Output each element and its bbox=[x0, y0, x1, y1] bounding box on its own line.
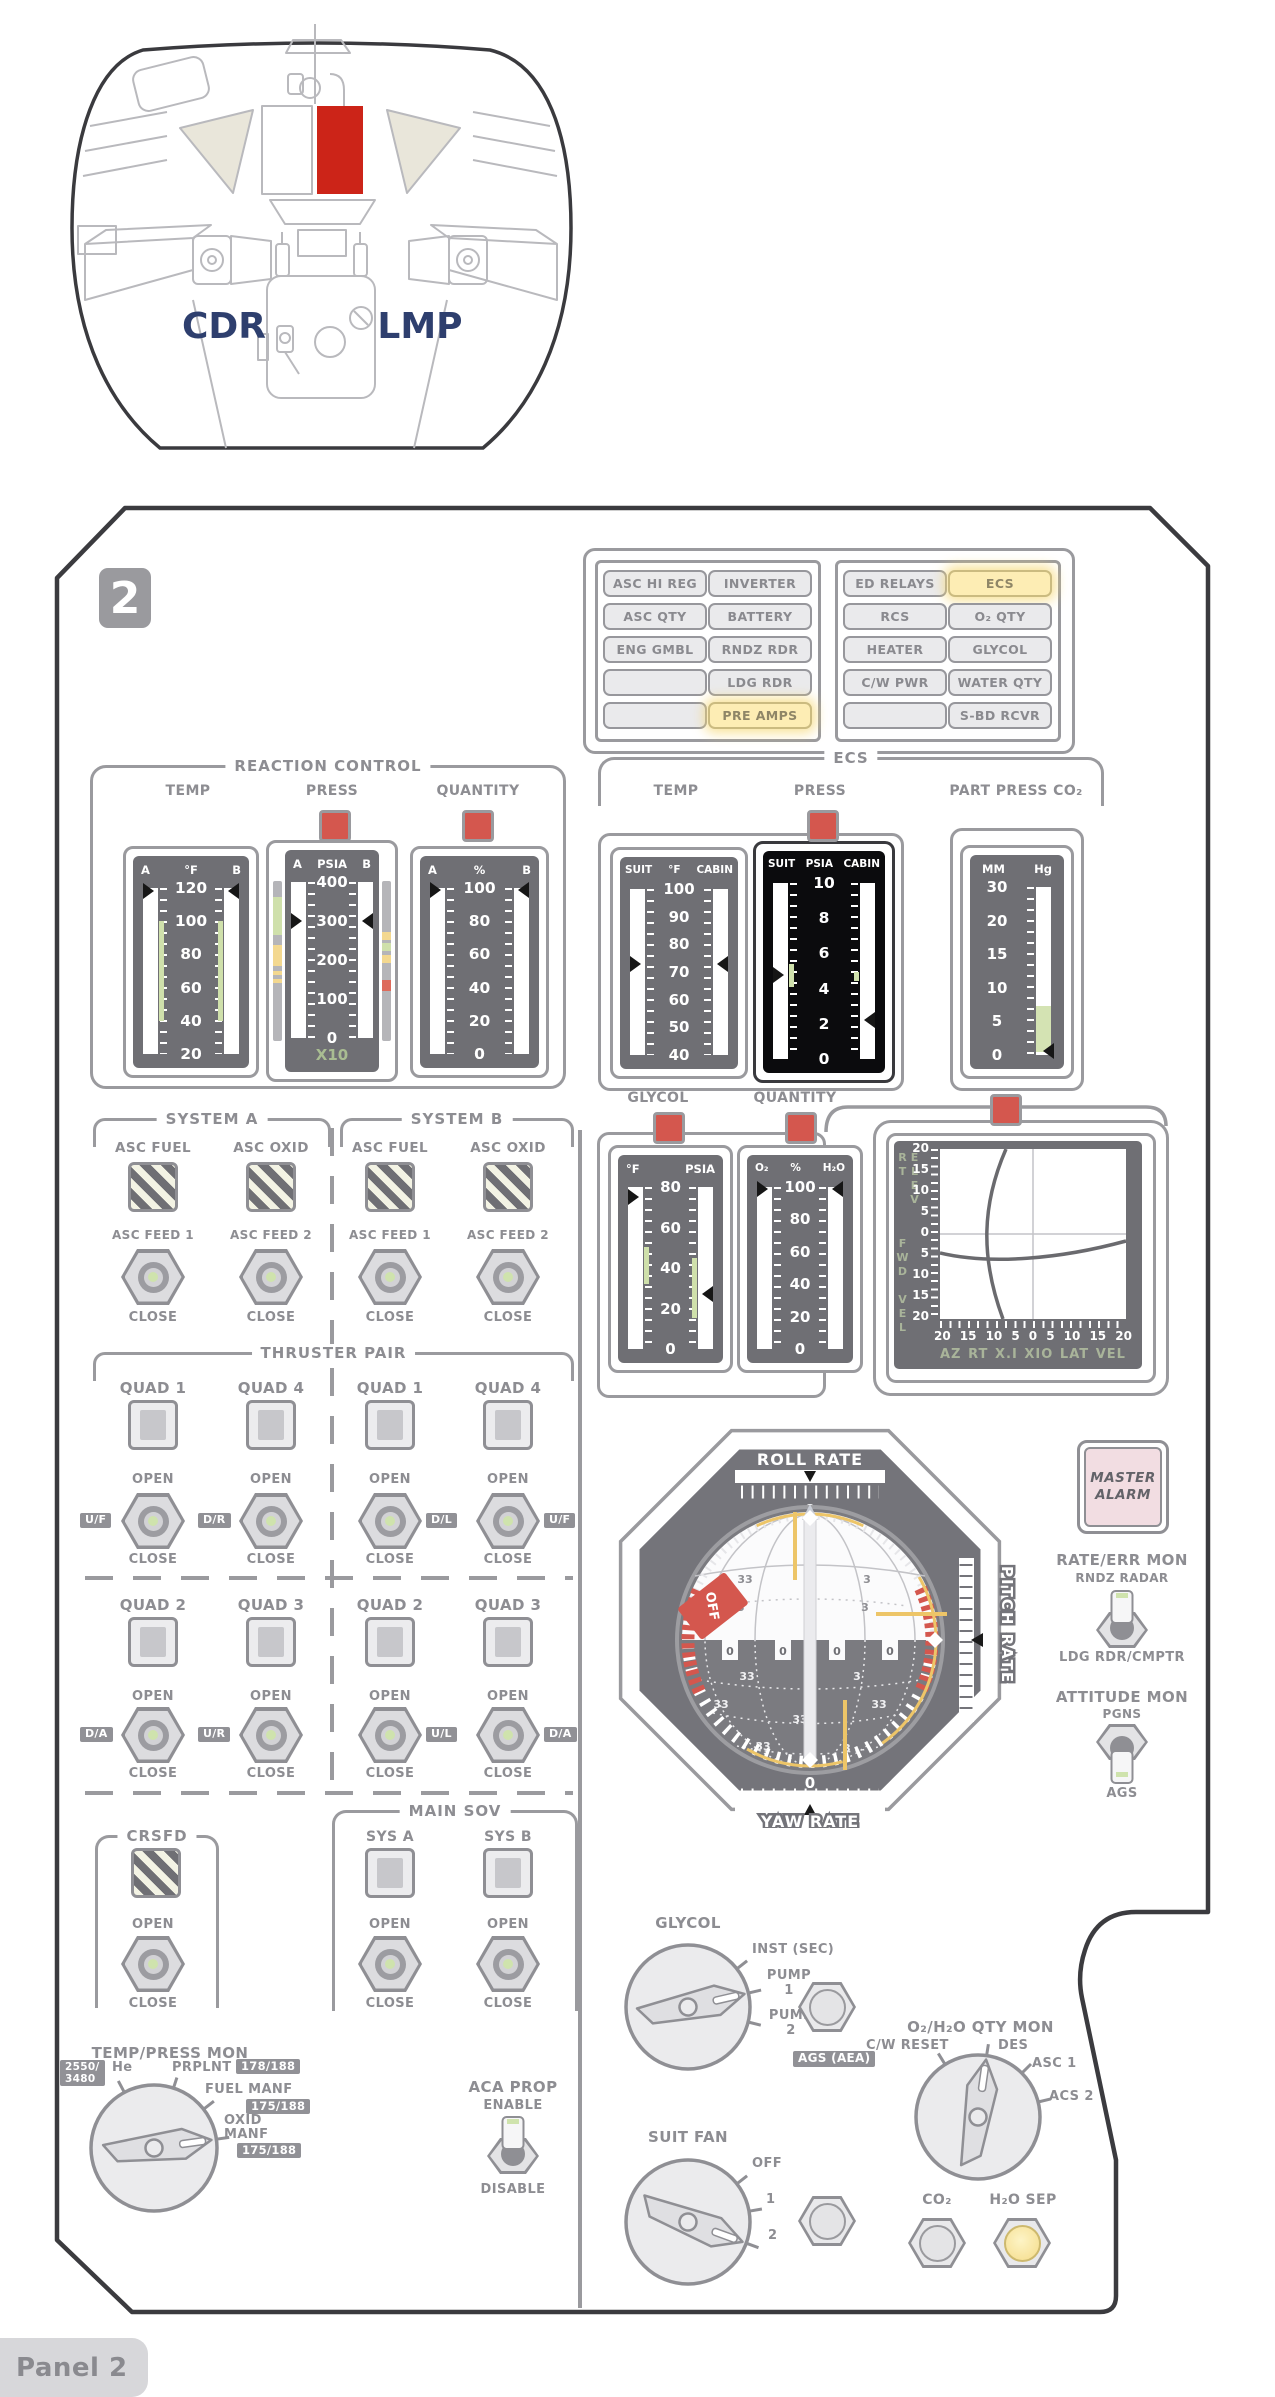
crsfd-talkback bbox=[131, 1848, 181, 1898]
quad-flag bbox=[128, 1617, 178, 1667]
quad-flag bbox=[483, 1400, 533, 1450]
tpmon-he-press-badge: 2550/3480 bbox=[60, 2060, 105, 2086]
h2o-sep-button-label: H₂O SEP bbox=[984, 2192, 1062, 2208]
master-alarm-button[interactable]: MASTERALARM bbox=[1077, 1440, 1169, 1534]
pointer-temp bbox=[628, 1189, 639, 1205]
asc-feed1-label-b: ASC FEED 1 bbox=[345, 1228, 435, 1242]
open-label: OPEN bbox=[350, 1689, 430, 1704]
thruster-pair-title: THRUSTER PAIR bbox=[252, 1344, 416, 1362]
quad-row-divider bbox=[85, 1576, 573, 1580]
svg-text:0: 0 bbox=[886, 1645, 894, 1658]
unit-f: °F bbox=[184, 863, 198, 877]
ecs-temp-gauge: SUIT°FCABIN 10090 8070 6050 40 bbox=[610, 847, 748, 1079]
pointer-h2o bbox=[832, 1181, 843, 1197]
attitude-mon-title: ATTITUDE MON bbox=[1032, 1688, 1212, 1706]
light-o2-qty: O₂ QTY bbox=[948, 603, 1052, 630]
glycol-pos-inst-sec: INST (SEC) bbox=[752, 1942, 834, 1957]
aca-prop-switch[interactable] bbox=[485, 2116, 541, 2176]
xpointer-hscale: 2015 105 05 1015 20 bbox=[934, 1329, 1132, 1343]
suit-fan-pos-2: 2 bbox=[768, 2228, 777, 2243]
tpmon-oxid-label: OXID bbox=[224, 2113, 262, 2128]
light-heater: HEATER bbox=[843, 636, 947, 663]
rate-err-mon-switch[interactable] bbox=[1094, 1590, 1150, 1650]
o2-pos-cw-reset: C/W RESET bbox=[866, 2038, 949, 2053]
thruster-tag: U/R bbox=[198, 1727, 230, 1742]
quad-label: QUAD 3 bbox=[226, 1596, 316, 1614]
ecs-press-gauge: SUITPSIACABIN 108 64 20 bbox=[753, 841, 895, 1083]
light-inverter: INVERTER bbox=[708, 570, 812, 597]
pointer-a bbox=[143, 883, 154, 899]
rcs-qty-warn-flag bbox=[462, 810, 494, 842]
cw-lights-outer: ASC HI REG INVERTER ASC QTY BATTERY ENG … bbox=[583, 548, 1075, 754]
panel-number-badge: 2 bbox=[99, 568, 151, 628]
ecs-co2-label: PART PRESS CO₂ bbox=[936, 783, 1096, 799]
light-blank bbox=[603, 702, 707, 729]
col-b: B bbox=[232, 863, 241, 877]
asc-oxid-talkback-b bbox=[483, 1162, 533, 1212]
aca-disable-label: DISABLE bbox=[465, 2182, 561, 2197]
pointer-b bbox=[518, 882, 529, 898]
pointer-press bbox=[702, 1286, 713, 1302]
light-glycol: GLYCOL bbox=[948, 636, 1052, 663]
ecs-qty-warn-flag bbox=[785, 1112, 817, 1144]
thruster-pair-bracket: THRUSTER PAIR bbox=[93, 1352, 574, 1381]
pointer-cabin bbox=[717, 956, 728, 972]
light-battery: BATTERY bbox=[708, 603, 812, 630]
tpmon-fuel-manf-label: FUEL MANF bbox=[205, 2082, 292, 2097]
light-rndz-rdr: RNDZ RDR bbox=[708, 636, 812, 663]
pointer-suit bbox=[773, 967, 784, 983]
open-label: OPEN bbox=[113, 1472, 193, 1487]
xpointer-axis-labels: AZRT X.IXIO LATVEL bbox=[940, 1347, 1126, 1362]
rcs-press-gauge: APSIAB 400300 200100 0 X10 bbox=[266, 840, 398, 1082]
asc-oxid-label-a: ASC OXID bbox=[226, 1140, 316, 1156]
light-rcs: RCS bbox=[843, 603, 947, 630]
close-label: CLOSE bbox=[231, 1552, 311, 1567]
fdai-attitude-indicator: ROLL RATE 0 0 0 0 0 bbox=[595, 1408, 1025, 1828]
rcs-temp-label: TEMP bbox=[138, 783, 238, 799]
sys-b-flag bbox=[483, 1848, 533, 1898]
thruster-tag: D/A bbox=[80, 1727, 113, 1742]
xpointer-curves bbox=[940, 1149, 1126, 1319]
pointer-suit bbox=[630, 956, 641, 972]
panel-center-divider bbox=[578, 1130, 582, 2308]
ecs-qty-label: QUANTITY bbox=[745, 1090, 845, 1106]
rcs-press-label: PRESS bbox=[282, 783, 382, 799]
close-label: CLOSE bbox=[113, 1310, 193, 1325]
close-label: CLOSE bbox=[350, 1766, 430, 1781]
tpmon-prplnt-label: PRPLNT bbox=[172, 2060, 232, 2075]
multiplier-label: X10 bbox=[285, 1046, 379, 1064]
svg-text:3: 3 bbox=[863, 1573, 871, 1586]
o2-pos-asc1: ASC 1 bbox=[1032, 2056, 1077, 2071]
range-strip-left bbox=[273, 881, 282, 1041]
close-label: CLOSE bbox=[113, 1552, 193, 1567]
close-label: CLOSE bbox=[468, 1310, 548, 1325]
main-sov-title: MAIN SOV bbox=[400, 1802, 511, 1820]
sys-b-label: SYS B bbox=[463, 1829, 553, 1845]
asc-fuel-label-b: ASC FUEL bbox=[345, 1140, 435, 1156]
cw-lights-left-box: ASC HI REG INVERTER ASC QTY BATTERY ENG … bbox=[595, 560, 821, 742]
panel-footer-badge: Panel 2 bbox=[0, 2338, 148, 2397]
o2-pos-acs2: ACS 2 bbox=[1049, 2089, 1094, 2104]
close-label: CLOSE bbox=[350, 1552, 430, 1567]
svg-text:3: 3 bbox=[853, 1670, 861, 1683]
ecs-title: ECS bbox=[824, 749, 877, 767]
close-label: CLOSE bbox=[350, 1996, 430, 2011]
quad-flag bbox=[365, 1400, 415, 1450]
svg-text:0: 0 bbox=[726, 1645, 734, 1658]
light-asc-hi-reg: ASC HI REG bbox=[603, 570, 707, 597]
rate-err-mon-title: RATE/ERR MON bbox=[1032, 1551, 1212, 1569]
rcs-temp-gauge: A°FB 120100 8060 4020 bbox=[123, 846, 259, 1078]
close-label: CLOSE bbox=[350, 1310, 430, 1325]
open-label: OPEN bbox=[350, 1917, 430, 1932]
glycol-pos-pump1: PUMP bbox=[766, 1968, 812, 1983]
co2-partial-pressure-gauge: MMHg 3020 1510 50 bbox=[960, 845, 1074, 1079]
quad-label: QUAD 1 bbox=[345, 1379, 435, 1397]
ecs-press-label: PRESS bbox=[770, 783, 870, 799]
asc-feed2-label-a: ASC FEED 2 bbox=[226, 1228, 316, 1242]
quad-flag bbox=[365, 1617, 415, 1667]
xpointer-vscale: 2015 105 05 1015 20 bbox=[907, 1141, 929, 1323]
suit-fan-pos-off: OFF bbox=[752, 2156, 782, 2171]
quad-flag bbox=[128, 1400, 178, 1450]
pointer-a bbox=[430, 882, 441, 898]
light-eng-gmbl: ENG GMBL bbox=[603, 636, 707, 663]
crsfd-title: CRSFD bbox=[117, 1827, 196, 1845]
asc-feed1-label-a: ASC FEED 1 bbox=[108, 1228, 198, 1242]
close-label: CLOSE bbox=[468, 1766, 548, 1781]
open-label: OPEN bbox=[113, 1689, 193, 1704]
svg-text:33: 33 bbox=[737, 1573, 752, 1586]
quad-label: QUAD 2 bbox=[108, 1596, 198, 1614]
quad-label: QUAD 1 bbox=[108, 1379, 198, 1397]
open-label: OPEN bbox=[350, 1472, 430, 1487]
suit-fan-pos-1: 1 bbox=[766, 2192, 775, 2207]
svg-text:3: 3 bbox=[861, 1601, 869, 1614]
pointer-cabin bbox=[864, 1012, 875, 1028]
light-pre-amps: PRE AMPS bbox=[708, 702, 812, 729]
thruster-tag: U/F bbox=[80, 1513, 111, 1528]
ecs-quantity-gauge: O₂%H₂O 10080 6040 200 bbox=[737, 1145, 863, 1373]
light-cw-pwr: C/W PWR bbox=[843, 669, 947, 696]
light-water-qty: WATER QTY bbox=[948, 669, 1052, 696]
quad-label: QUAD 4 bbox=[226, 1379, 316, 1397]
thruster-tag: D/L bbox=[426, 1513, 457, 1528]
light-asc-qty: ASC QTY bbox=[603, 603, 707, 630]
svg-text:33: 33 bbox=[871, 1698, 886, 1711]
roll-rate-label: ROLL RATE bbox=[757, 1450, 863, 1469]
range-strip-right bbox=[382, 881, 391, 1041]
light-s-bd-rcvr: S-BD RCVR bbox=[948, 702, 1052, 729]
ecs-glycol-label: GLYCOL bbox=[608, 1090, 708, 1106]
light-ldg-rdr: LDG RDR bbox=[708, 669, 812, 696]
quad-flag bbox=[483, 1617, 533, 1667]
asc-feed2-label-b: ASC FEED 2 bbox=[463, 1228, 553, 1242]
pointer-b bbox=[362, 913, 373, 929]
open-label: OPEN bbox=[468, 1472, 548, 1487]
pointer-co2 bbox=[1043, 1043, 1054, 1059]
light-ed-relays: ED RELAYS bbox=[843, 570, 947, 597]
ags-aea-badge: AGS (AEA) bbox=[793, 2051, 875, 2067]
attitude-mon-switch[interactable] bbox=[1094, 1722, 1150, 1782]
xpointer-warn-flag bbox=[990, 1094, 1022, 1126]
system-b-title: SYSTEM B bbox=[402, 1110, 513, 1128]
thruster-tag: D/A bbox=[544, 1727, 577, 1742]
pitch-zero: 0 bbox=[988, 1632, 998, 1650]
asc-fuel-talkback-a bbox=[128, 1162, 178, 1212]
pointer-a bbox=[291, 913, 302, 929]
panel-footer-label: Panel 2 bbox=[0, 2353, 128, 2383]
xpointer-vticks bbox=[931, 1149, 938, 1319]
rcs-press-warn-flag bbox=[319, 810, 351, 842]
asc-fuel-label-a: ASC FUEL bbox=[108, 1140, 198, 1156]
aca-prop-title: ACA PROP bbox=[465, 2078, 561, 2096]
co2-button-label: CO₂ bbox=[908, 2192, 966, 2208]
pointer-b bbox=[228, 883, 239, 899]
close-label: CLOSE bbox=[468, 1552, 548, 1567]
tpmon-manf-label: MANF bbox=[224, 2127, 268, 2142]
ldg-rdr-cmptr-label: LDG RDR/CMPTR bbox=[1032, 1650, 1212, 1665]
asc-oxid-talkback-a bbox=[246, 1162, 296, 1212]
system-divider bbox=[330, 1128, 334, 1791]
glycol-gauge: °FPSIA 8060 4020 0 bbox=[608, 1145, 733, 1373]
thruster-bottom-divider bbox=[85, 1791, 573, 1795]
open-label: OPEN bbox=[231, 1472, 311, 1487]
sys-a-label: SYS A bbox=[345, 1829, 435, 1845]
xpointer-hticks bbox=[940, 1321, 1126, 1328]
aca-enable-label: ENABLE bbox=[465, 2098, 561, 2113]
ecs-temp-label: TEMP bbox=[626, 783, 726, 799]
tpmon-oxid-badge: 175/188 bbox=[237, 2143, 301, 2158]
tpmon-he-label: He bbox=[112, 2060, 133, 2075]
glycol-warn-flag bbox=[653, 1112, 685, 1144]
close-label: CLOSE bbox=[231, 1766, 311, 1781]
close-label: CLOSE bbox=[113, 1996, 193, 2011]
svg-text:33: 33 bbox=[739, 1670, 754, 1683]
close-label: CLOSE bbox=[113, 1766, 193, 1781]
quad-flag bbox=[246, 1400, 296, 1450]
close-label: CLOSE bbox=[468, 1996, 548, 2011]
thruster-tag: U/L bbox=[426, 1727, 457, 1742]
light-ecs: ECS bbox=[948, 570, 1052, 597]
system-a-title: SYSTEM A bbox=[157, 1110, 268, 1128]
asc-fuel-talkback-b bbox=[365, 1162, 415, 1212]
pointer-o2 bbox=[757, 1181, 768, 1197]
rndz-radar-label: RNDZ RADAR bbox=[1032, 1571, 1212, 1585]
col-a: A bbox=[141, 863, 150, 877]
temp-press-mon-knob[interactable] bbox=[78, 2076, 243, 2236]
open-label: OPEN bbox=[468, 1689, 548, 1704]
asc-oxid-label-b: ASC OXID bbox=[463, 1140, 553, 1156]
quad-label: QUAD 2 bbox=[345, 1596, 435, 1614]
thruster-tag: U/F bbox=[544, 1513, 575, 1528]
light-blank bbox=[603, 669, 707, 696]
cw-lights-right-box: ED RELAYS ECS RCS O₂ QTY HEATER GLYCOL C… bbox=[835, 560, 1061, 742]
ecs-press-warn-flag bbox=[807, 810, 839, 842]
reaction-control-title: REACTION CONTROL bbox=[225, 757, 430, 775]
rcs-quantity-gauge: A%B 10080 6040 200 bbox=[410, 846, 549, 1078]
lm-panel2-diagram: CDR LMP 2 ASC HI REG INVERTER ASC QTY BA… bbox=[0, 0, 1275, 2397]
xpointer-plot bbox=[940, 1149, 1126, 1319]
pitch-rate-label: PITCH RATE bbox=[998, 1566, 1016, 1684]
svg-text:0: 0 bbox=[833, 1645, 841, 1658]
thruster-tag: D/R bbox=[198, 1513, 231, 1528]
pgns-label: PGNS bbox=[1032, 1707, 1212, 1721]
open-label: OPEN bbox=[231, 1689, 311, 1704]
o2-pos-des: DES bbox=[998, 2038, 1028, 2053]
light-blank bbox=[843, 702, 947, 729]
open-label: OPEN bbox=[113, 1917, 193, 1932]
yaw-rate-label: YAW RATE bbox=[760, 1812, 859, 1828]
rcs-qty-label: QUANTITY bbox=[428, 783, 528, 799]
sys-a-flag bbox=[365, 1848, 415, 1898]
o2-h2o-qty-mon-title: O₂/H₂O QTY MON bbox=[888, 2018, 1073, 2036]
open-label: OPEN bbox=[468, 1917, 548, 1932]
quad-label: QUAD 3 bbox=[463, 1596, 553, 1614]
tpmon-fuel-badge: 175/188 bbox=[246, 2099, 310, 2114]
quad-label: QUAD 4 bbox=[463, 1379, 553, 1397]
ags-label: AGS bbox=[1032, 1786, 1212, 1801]
close-label: CLOSE bbox=[231, 1310, 311, 1325]
svg-text:0: 0 bbox=[779, 1645, 787, 1658]
tpmon-prplnt-badge: 178/188 bbox=[236, 2059, 300, 2074]
quad-flag bbox=[246, 1617, 296, 1667]
xpointer-display: ELEV RT FWD VEL 2015 105 05 1015 20 2015… bbox=[894, 1141, 1142, 1369]
